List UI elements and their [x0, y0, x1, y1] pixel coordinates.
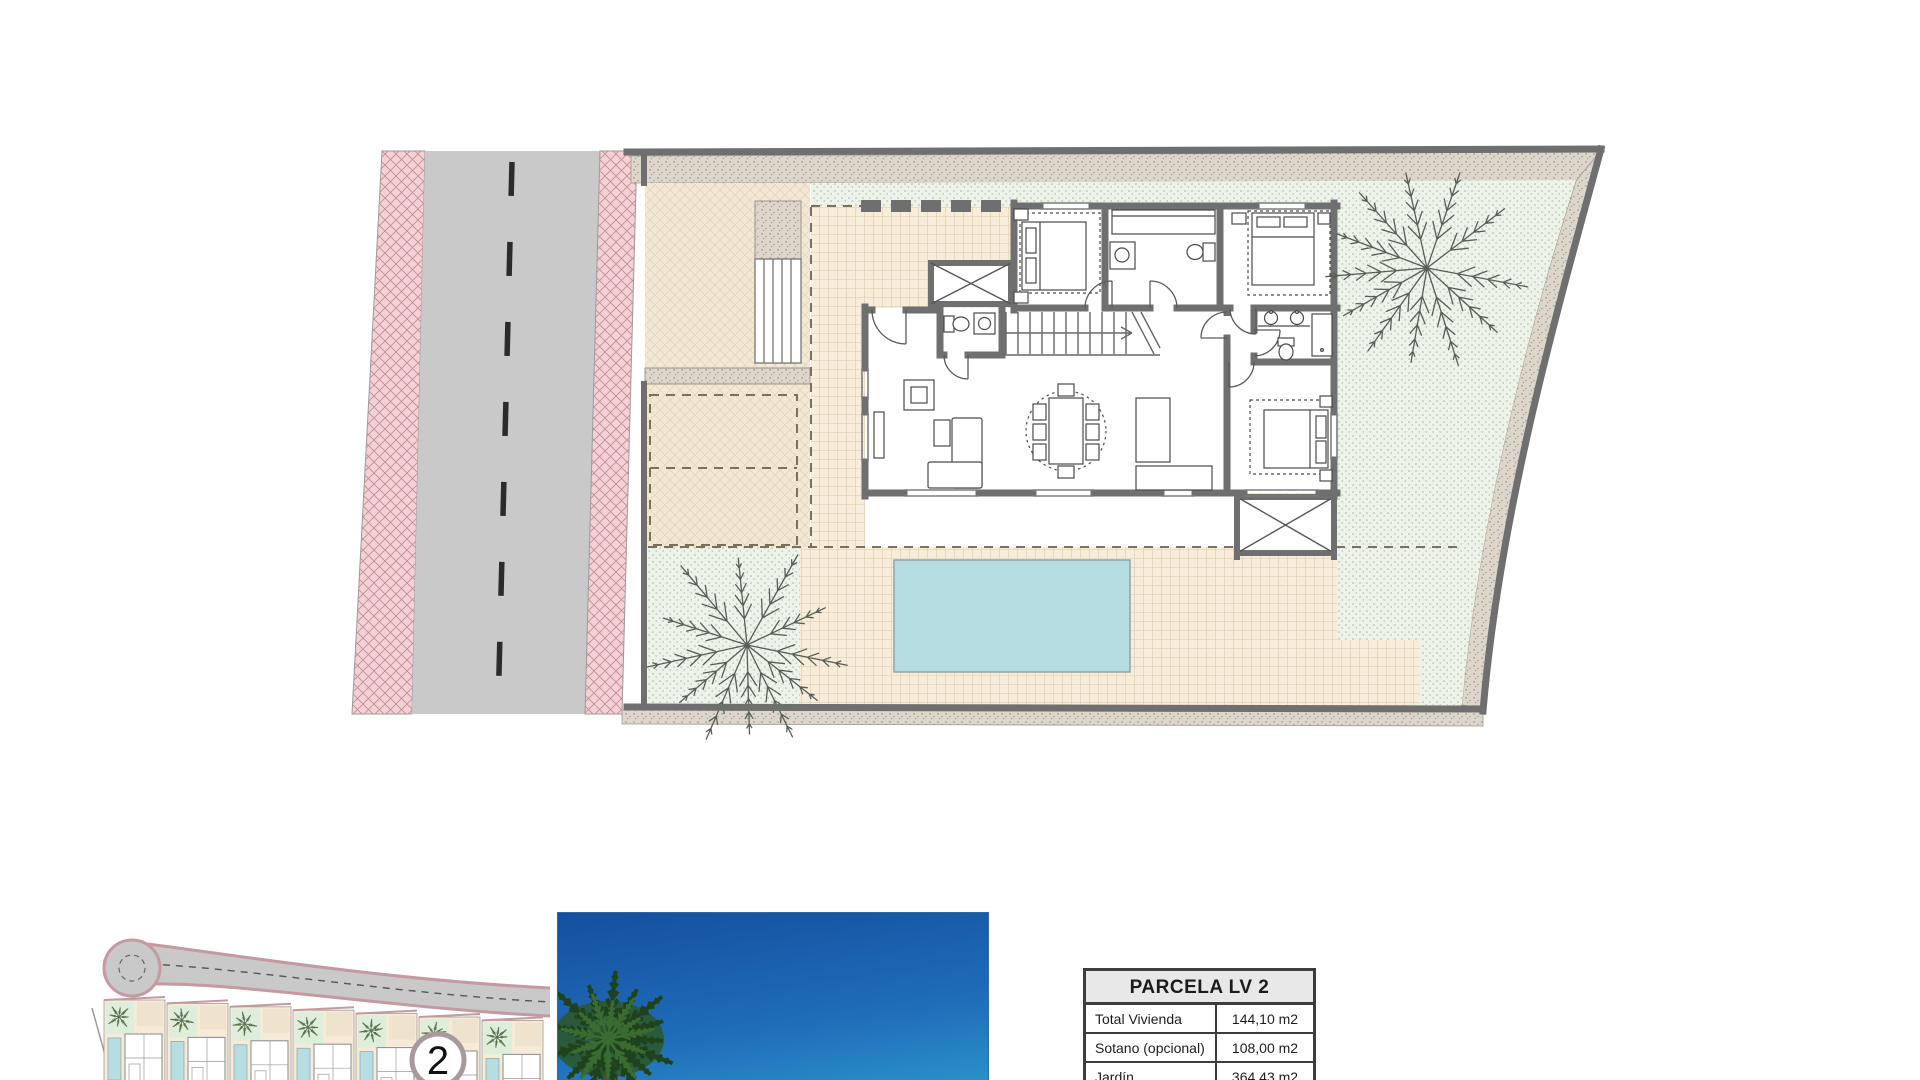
- map-plot: [482, 1017, 543, 1080]
- row-label: Jardín: [1086, 1063, 1217, 1080]
- street: [352, 151, 637, 714]
- page: 2 PARCELA LV 2 Total Vivienda 144,10 m2 …: [0, 0, 1920, 1080]
- entry-path: [645, 368, 810, 384]
- row-label: Sotano (opcional): [1086, 1034, 1217, 1061]
- deck-east: [1337, 640, 1420, 705]
- site-overview-svg: 2: [90, 930, 550, 1080]
- map-plot: [104, 997, 165, 1080]
- row-label: Total Vivienda: [1086, 1005, 1217, 1032]
- sky-photo: [557, 912, 989, 1080]
- map-plot: [167, 1000, 228, 1080]
- gravel-band-top: [631, 152, 1597, 183]
- row-value: 108,00 m2: [1217, 1034, 1313, 1061]
- map-plot: [356, 1011, 417, 1080]
- patio-box-nw: [931, 263, 1011, 304]
- table-row: Jardín 364,43 m2: [1086, 1063, 1313, 1080]
- table-title: PARCELA LV 2: [1086, 971, 1313, 1005]
- carport-box-se: [1237, 497, 1334, 553]
- table-row: Total Vivienda 144,10 m2: [1086, 1005, 1313, 1034]
- site-overview-map: 2: [90, 930, 550, 1080]
- terrace-west: [811, 310, 865, 547]
- gravel-band-bottom: [622, 710, 1483, 726]
- row-value: 144,10 m2: [1217, 1005, 1313, 1032]
- photo-palm-silhouette: [558, 913, 990, 1080]
- parcel-marker-number: 2: [427, 1039, 449, 1080]
- swimming-pool: [894, 560, 1130, 672]
- exterior-stairs: [755, 259, 801, 363]
- roundabout: [104, 940, 160, 996]
- row-value: 364,43 m2: [1217, 1063, 1313, 1080]
- map-plot: [293, 1007, 354, 1080]
- parcel-marker: 2: [412, 1034, 464, 1080]
- area-table: PARCELA LV 2 Total Vivienda 144,10 m2 So…: [1083, 968, 1316, 1080]
- table-row: Sotano (opcional) 108,00 m2: [1086, 1034, 1313, 1063]
- entry-pad: [755, 201, 801, 259]
- parking-area: [645, 384, 810, 547]
- map-plot: [230, 1004, 291, 1080]
